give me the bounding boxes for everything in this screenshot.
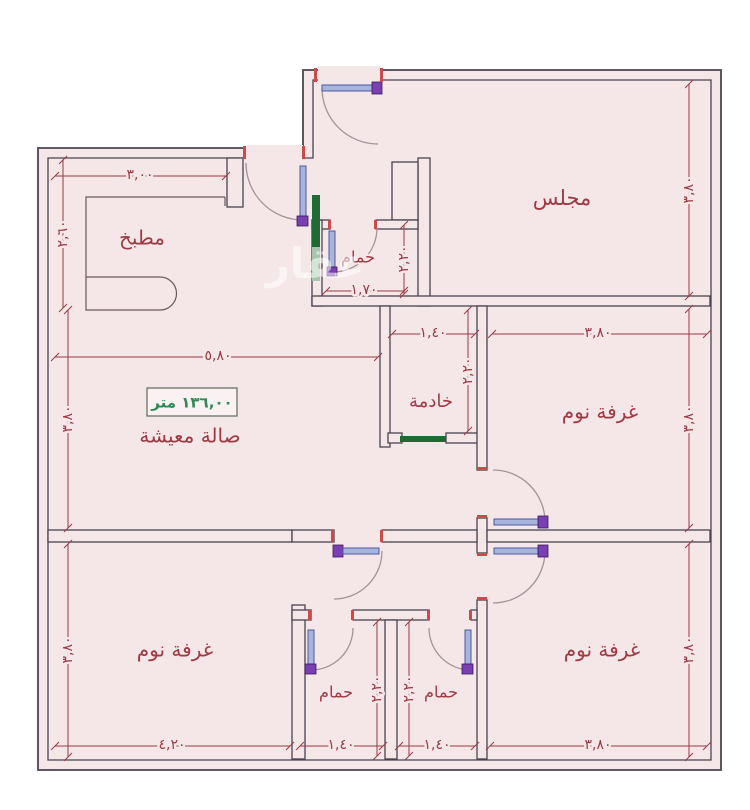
room-label-kitchen: مطبخ <box>119 226 165 250</box>
dimension-label: ٥,٨٠ <box>204 348 231 364</box>
dimension-label: ٣,٨٠ <box>681 405 697 432</box>
dimension-label: ٣,٨٠ <box>584 737 611 753</box>
door-hinge <box>538 545 548 557</box>
door-leaf <box>322 85 372 91</box>
door-leaf <box>343 548 379 554</box>
door-hinge <box>372 82 382 94</box>
dimension-label: ٣,٨٠ <box>681 636 697 663</box>
room-label-bedroom-bottom-right: غرفة نوم <box>564 638 640 662</box>
dimension-label: ٢,٦٠ <box>55 220 71 247</box>
floor-plan: ٣,٠٠٢,٦٠٥,٨٠١,٧٠٢,٢٠٣,٨٠٣,٨٠١,٤٠٢,٢٠٣,٨٠… <box>0 0 750 810</box>
door-leaf <box>308 630 314 664</box>
dimension-label: ٢,٢٠ <box>396 245 412 272</box>
door-hinge <box>305 664 316 674</box>
maid-door-sill <box>400 436 446 442</box>
watermark-text: عقار <box>264 239 365 288</box>
door-hinge <box>333 545 343 557</box>
room-label-majlis: مجلس <box>533 186 592 210</box>
dimension-label: ١,٤٠ <box>423 737 450 753</box>
room-label-bedroom-bottom-left: غرفة نوم <box>137 638 213 662</box>
door-hinge <box>462 664 473 674</box>
room-label-bathroom-a: حمام <box>319 683 353 702</box>
door-leaf <box>494 519 538 525</box>
dimension-label: ٣,٨٠ <box>60 636 76 663</box>
dimension-label: ٤,٢٠ <box>158 737 185 753</box>
dimension-label: ٢,٢٠ <box>401 675 417 702</box>
dimension-label: ٢,٢٠ <box>460 357 476 384</box>
dimension-label: ٣,٠٠ <box>126 167 153 183</box>
dimension-label: ٣,٨٠ <box>60 405 76 432</box>
dimension-label: ٣,٨٠ <box>584 325 611 341</box>
door-hinge <box>297 216 308 226</box>
door-hinge <box>538 516 548 528</box>
room-label-maid-room: خادمة <box>409 391 453 412</box>
door-leaf <box>465 630 471 664</box>
door-leaf <box>300 166 306 216</box>
door-leaf <box>494 548 538 554</box>
area-label: ١٣٦,٠٠ متر <box>150 394 232 412</box>
dimension-label: ١,٤٠ <box>419 325 446 341</box>
dimension-label: ١,٤٠ <box>327 737 354 753</box>
room-label-living-hall: صالة معيشة <box>139 424 240 448</box>
dimension-label: ٢,٢٠ <box>369 675 385 702</box>
dimension-label: ٣,٨٠ <box>681 176 697 203</box>
room-label-bedroom-right: غرفة نوم <box>562 400 638 424</box>
room-label-bathroom-b: حمام <box>424 683 458 702</box>
